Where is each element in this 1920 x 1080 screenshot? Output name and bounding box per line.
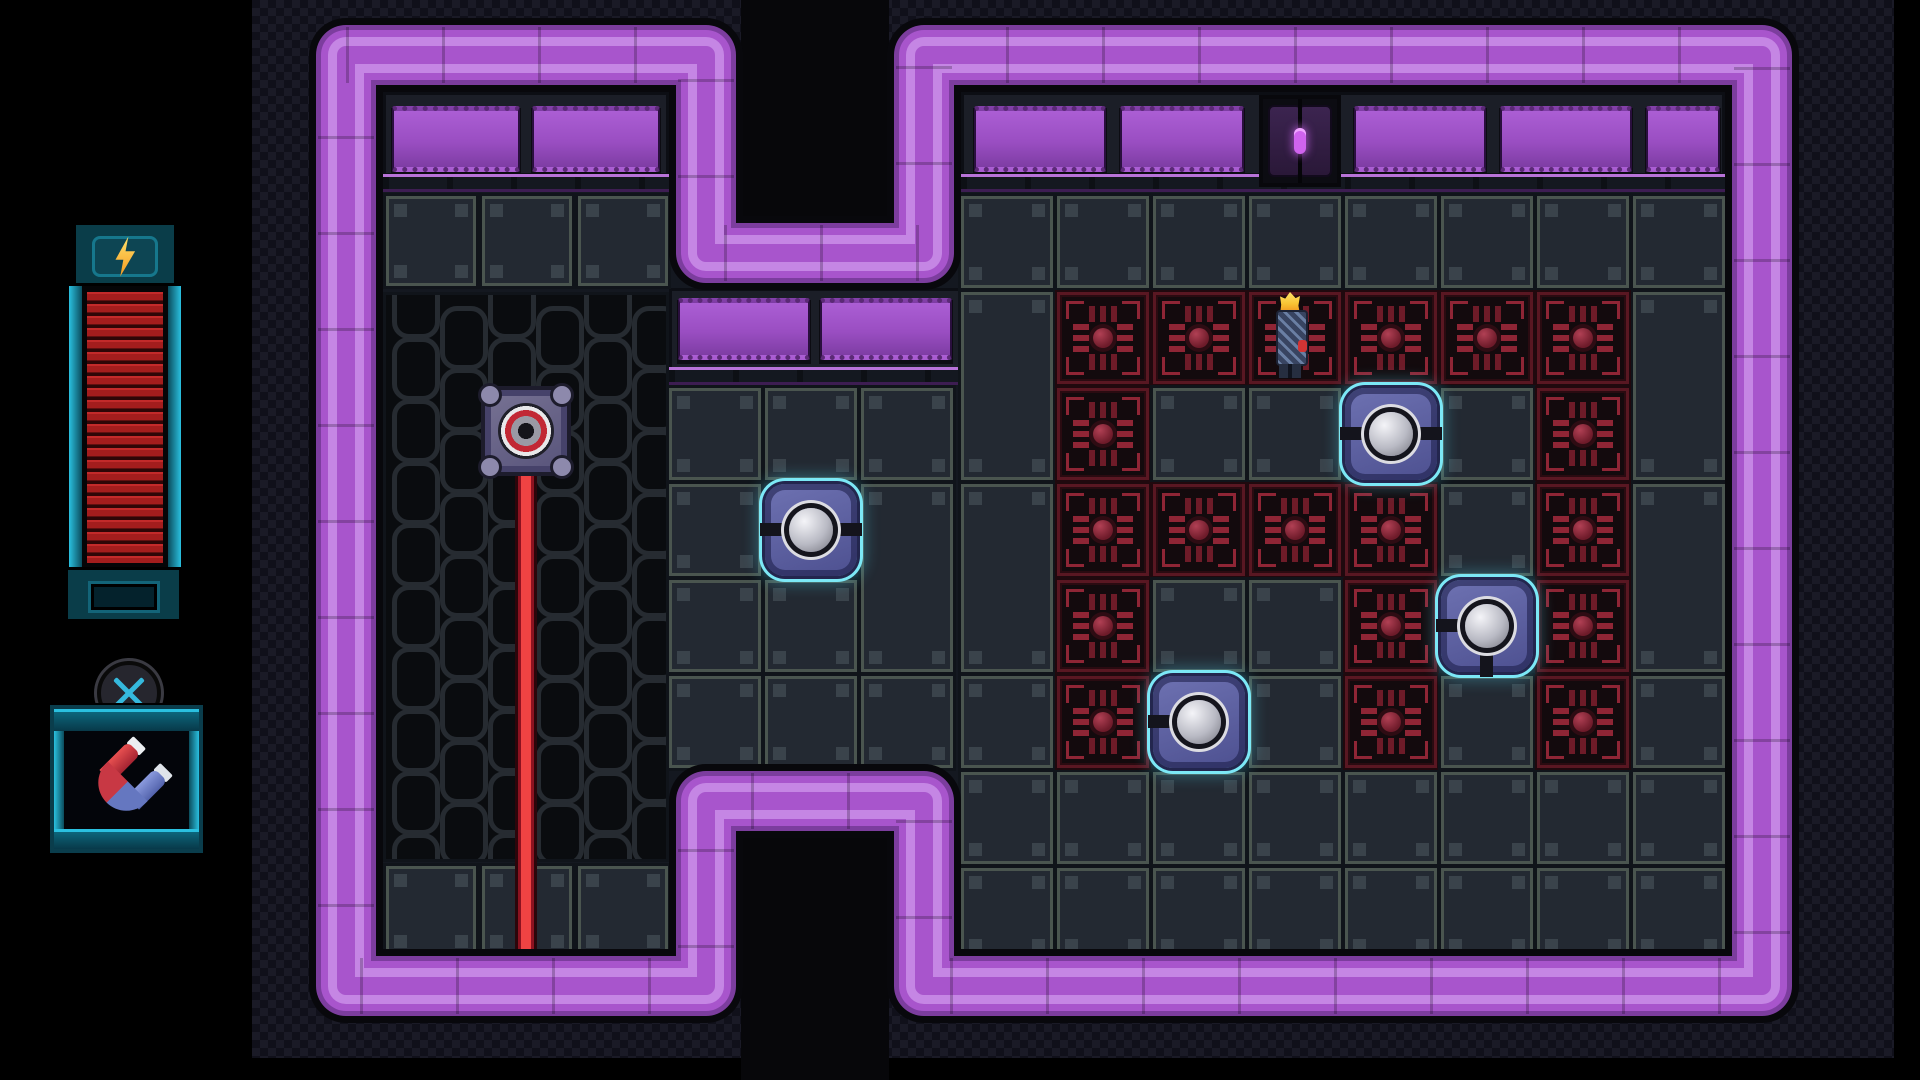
right-header-window-5 — [1646, 106, 1720, 172]
grate-ring — [584, 399, 632, 463]
grate-ring — [392, 585, 440, 649]
grate-ring — [440, 678, 488, 742]
floor-tile — [1633, 292, 1725, 480]
grate-ring — [584, 709, 632, 773]
grate-ring — [392, 833, 440, 862]
door[interactable] — [1259, 95, 1341, 187]
laser-lens — [498, 403, 554, 459]
floor-tile — [861, 484, 953, 672]
floor-tile — [961, 676, 1053, 768]
floor-tile — [1345, 196, 1437, 288]
floor-tile — [482, 196, 572, 286]
grate-ring — [536, 740, 584, 804]
floor-tile — [961, 196, 1053, 288]
node-4[interactable] — [1441, 580, 1533, 672]
grate-ring — [584, 337, 632, 401]
grate-ring — [632, 430, 669, 494]
floor-tile — [961, 484, 1053, 672]
floor-tile — [1153, 772, 1245, 864]
grate-ring — [632, 678, 669, 742]
floor-tile — [1153, 868, 1245, 960]
grate-ring — [584, 292, 632, 339]
item-slot-left-rail — [54, 731, 64, 829]
grate-ring — [536, 306, 584, 370]
floor-tile — [1057, 868, 1149, 960]
character-legs — [1279, 364, 1301, 378]
floor-tile — [861, 676, 953, 768]
laser-turret[interactable] — [481, 386, 571, 476]
floor-tile — [1249, 580, 1341, 672]
grate-ring — [632, 492, 669, 556]
grate-ring — [440, 306, 488, 370]
item-slot[interactable] — [50, 705, 203, 853]
node-sphere — [1177, 700, 1221, 744]
left-header-window-1 — [392, 106, 520, 172]
grate-ring — [536, 492, 584, 556]
floor-tile — [669, 388, 761, 480]
node-2[interactable] — [1345, 388, 1437, 480]
right-header-window-3 — [1354, 106, 1486, 172]
hazard-tile — [1057, 388, 1149, 480]
energy-bar-header-panel — [92, 236, 158, 277]
character-hand — [1298, 340, 1307, 352]
grate-ring — [392, 461, 440, 525]
hazard-tile — [1057, 580, 1149, 672]
grate-ring — [440, 802, 488, 862]
hazard-tile — [1537, 292, 1629, 384]
floor-tile — [765, 676, 857, 768]
magnet-icon — [85, 740, 168, 823]
door-light — [1294, 128, 1306, 154]
hazard-tile — [1057, 484, 1149, 576]
right-header-window-2 — [1120, 106, 1244, 172]
grate-ring — [632, 740, 669, 804]
floor-tile — [1249, 868, 1341, 960]
floor-tile — [765, 388, 857, 480]
hazard-tile — [1537, 484, 1629, 576]
grate-ring — [392, 771, 440, 835]
left-header-window-2 — [532, 106, 660, 172]
laser-beam — [515, 470, 537, 958]
grate-ring — [392, 523, 440, 587]
middle-shelf-window-2 — [820, 298, 952, 360]
floor-tile — [1633, 196, 1725, 288]
grate-ring — [632, 368, 669, 432]
floor-tile — [1153, 580, 1245, 672]
item-slot-top-bar — [54, 709, 199, 731]
floor-tile — [1537, 868, 1629, 960]
energy-bar-channel — [82, 286, 168, 567]
hazard-tile — [1057, 292, 1149, 384]
grate-ring — [392, 709, 440, 773]
hazard-tile — [1537, 676, 1629, 768]
middle-shelf-lip — [669, 367, 961, 385]
floor-tile — [1441, 484, 1533, 576]
hazard-tile — [1345, 292, 1437, 384]
floor-tile — [1633, 676, 1725, 768]
floor-tile — [578, 196, 668, 286]
floor-tile — [961, 868, 1053, 960]
floor-tile — [1633, 868, 1725, 960]
floor-tile — [1153, 196, 1245, 288]
floor-tile — [1441, 868, 1533, 960]
floor-tile — [1441, 676, 1533, 768]
node-3[interactable] — [1153, 676, 1245, 768]
hazard-tile — [1153, 484, 1245, 576]
grate-ring — [392, 399, 440, 463]
node-1[interactable] — [765, 484, 857, 576]
grate-ring — [536, 554, 584, 618]
right-header-lip — [961, 174, 1725, 192]
grate-ring — [392, 647, 440, 711]
energy-bar-header — [73, 222, 177, 286]
item-slot-right-rail — [189, 731, 199, 829]
grate-ring — [392, 337, 440, 401]
grate-ring — [440, 616, 488, 680]
grate-ring — [440, 740, 488, 804]
floor-tile — [861, 388, 953, 480]
grate-ring — [536, 802, 584, 862]
grate-ring — [632, 306, 669, 370]
hazard-tile — [1249, 484, 1341, 576]
energy-bar-base-panel — [91, 584, 157, 610]
floor-tile — [1057, 772, 1149, 864]
hazard-tile — [1537, 580, 1629, 672]
item-slot-bottom-bar — [54, 829, 199, 849]
floor-tile — [1441, 388, 1533, 480]
hazard-tile — [1057, 676, 1149, 768]
right-header-window-4 — [1500, 106, 1632, 172]
floor-tile — [1441, 772, 1533, 864]
node-sphere — [1465, 604, 1509, 648]
hazard-tile — [1345, 580, 1437, 672]
floor-tile — [1537, 196, 1629, 288]
grate-ring — [584, 585, 632, 649]
grate-ring — [584, 647, 632, 711]
hazard-tile — [1345, 484, 1437, 576]
hazard-tile — [1537, 388, 1629, 480]
floor-tile — [669, 484, 761, 576]
grate-ring — [632, 802, 669, 862]
floor-tile — [1057, 196, 1149, 288]
left-header-lip — [383, 174, 669, 192]
floor-tile — [1633, 484, 1725, 672]
node-sphere — [1369, 412, 1413, 456]
floor-tile — [765, 580, 857, 672]
hazard-tile — [1345, 676, 1437, 768]
grate-ring — [584, 523, 632, 587]
grate-ring — [440, 554, 488, 618]
energy-bar-base — [65, 567, 182, 622]
grate-ring — [632, 554, 669, 618]
energy-bar-fill — [87, 292, 163, 563]
energy-bar-rail-left — [69, 286, 82, 567]
hazard-tile — [1153, 292, 1245, 384]
floor-tile — [961, 772, 1053, 864]
floor-tile — [1153, 388, 1245, 480]
floor-tile — [1441, 196, 1533, 288]
floor-tile — [1249, 196, 1341, 288]
grate-ring — [536, 678, 584, 742]
grate-ring — [440, 492, 488, 556]
grate-ring — [632, 616, 669, 680]
floor-tile — [1249, 676, 1341, 768]
floor-tile — [1345, 868, 1437, 960]
middle-shelf-window-1 — [678, 298, 810, 360]
grate-ring — [584, 771, 632, 835]
grate-ring — [488, 292, 536, 339]
hazard-tile — [1441, 292, 1533, 384]
grate-ring — [584, 833, 632, 862]
floor-tile — [961, 292, 1053, 480]
character-body — [1276, 310, 1308, 366]
player-character[interactable] — [1275, 292, 1305, 378]
floor-tile — [1345, 772, 1437, 864]
floor-tile — [1249, 388, 1341, 480]
floor-tile — [578, 866, 668, 956]
floor-tile — [669, 676, 761, 768]
floor-tile — [386, 866, 476, 956]
floor-tile — [1249, 772, 1341, 864]
floor-tile — [669, 580, 761, 672]
floor-tile — [1537, 772, 1629, 864]
node-sphere — [789, 508, 833, 552]
floor-tile — [1633, 772, 1725, 864]
floor-tile — [386, 196, 476, 286]
lightning-bolt-icon — [111, 237, 139, 277]
game-viewport — [0, 0, 1920, 1080]
grate-ring — [392, 292, 440, 339]
right-header-window-1 — [974, 106, 1106, 172]
energy-bar-rail-right — [168, 286, 181, 567]
grate-ring — [536, 616, 584, 680]
grate-ring — [584, 461, 632, 525]
